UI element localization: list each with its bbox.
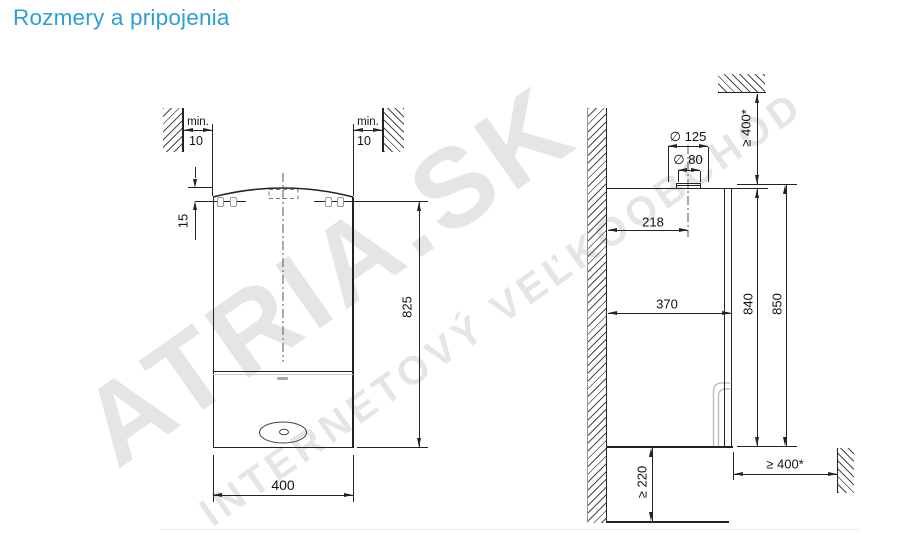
extension-line-boiler-top bbox=[732, 188, 768, 189]
arrow-right-icon bbox=[203, 128, 212, 132]
arrow-left-icon bbox=[213, 493, 222, 497]
mounting-bracket bbox=[325, 197, 332, 207]
extension-line bbox=[353, 124, 354, 196]
arrow-left-icon bbox=[354, 128, 363, 132]
wall-hatch-rear bbox=[588, 108, 606, 523]
arrow-down-icon bbox=[755, 437, 759, 446]
arrow-left-icon bbox=[608, 311, 617, 315]
extension-line-collar-top bbox=[737, 184, 797, 185]
arrow-up-icon bbox=[755, 94, 759, 103]
arrow-left-icon bbox=[678, 168, 687, 172]
dim-220-line bbox=[652, 448, 653, 521]
dim-top-clearance-value: ≥ 400* bbox=[739, 109, 754, 147]
brand-logo bbox=[277, 377, 288, 380]
extension-line bbox=[700, 171, 701, 182]
extension-line bbox=[737, 446, 797, 447]
arrow-down-icon bbox=[193, 179, 197, 188]
dim-min-left-label: min. bbox=[187, 116, 209, 128]
mounting-bracket bbox=[217, 197, 224, 207]
dim-370-value: 370 bbox=[656, 297, 678, 312]
page-edge-line bbox=[160, 529, 860, 530]
wall-line-right bbox=[382, 108, 384, 152]
floor-line bbox=[606, 521, 729, 523]
dim-min-right-value: 10 bbox=[357, 134, 371, 148]
dim-370-line bbox=[608, 313, 731, 314]
arrow-right-icon bbox=[722, 311, 731, 315]
arrow-up-icon bbox=[417, 202, 421, 211]
boiler-top-side bbox=[607, 188, 732, 190]
arrow-up-icon bbox=[755, 189, 759, 198]
boiler-bottom bbox=[213, 447, 354, 449]
dim-400-line bbox=[213, 495, 353, 496]
arrow-down-icon bbox=[755, 175, 759, 184]
dim-825-line bbox=[419, 202, 420, 447]
panel-split-line bbox=[213, 371, 353, 373]
dim-840-line bbox=[757, 189, 758, 446]
dim-218-line bbox=[608, 230, 688, 231]
wall-hatch-right bbox=[384, 108, 404, 152]
flue-collar-mid bbox=[676, 185, 701, 186]
opposite-wall-hatch bbox=[838, 448, 854, 493]
dim-min-right-label: min. bbox=[357, 116, 379, 128]
dim-850-line bbox=[786, 185, 787, 446]
extension-line bbox=[708, 147, 709, 182]
dim-15-tail-bottom bbox=[195, 210, 196, 240]
extension-line bbox=[212, 124, 213, 196]
arrow-right-icon bbox=[344, 493, 353, 497]
control-knob-center bbox=[280, 429, 289, 435]
arrow-left-icon bbox=[184, 128, 193, 132]
boiler-bottom-side bbox=[607, 446, 733, 448]
dim-840-value: 840 bbox=[741, 293, 756, 315]
dim-d80-value: ∅ 80 bbox=[673, 152, 702, 168]
arrow-left-icon bbox=[608, 228, 617, 232]
drawing-curves bbox=[0, 0, 900, 545]
ceiling-hatch bbox=[718, 74, 765, 92]
arrow-down-icon bbox=[783, 437, 787, 446]
arrow-down-icon bbox=[417, 438, 421, 447]
panel-split-shadow bbox=[213, 374, 353, 375]
wall-face-line bbox=[606, 108, 608, 523]
arrow-down-icon bbox=[649, 512, 653, 521]
dim-220-value: ≥ 220 bbox=[635, 466, 650, 498]
dim-front-clearance-value: ≥ 400* bbox=[766, 457, 804, 472]
boiler-edge-left bbox=[213, 197, 215, 448]
extension-line bbox=[733, 452, 734, 480]
boiler-edge-right bbox=[352, 197, 354, 448]
control-knob bbox=[260, 422, 307, 443]
dim-15-tick bbox=[188, 187, 212, 188]
dim-850-value: 850 bbox=[769, 293, 784, 315]
arrow-up-icon bbox=[649, 448, 653, 457]
extension-line bbox=[678, 171, 679, 182]
boiler-front-outer bbox=[731, 188, 733, 446]
diagram-page: ATRIA.SK INTERNETOVÝ VEĽKOOBCHOD Rozmery… bbox=[0, 0, 900, 545]
flue-collar-side bbox=[700, 183, 701, 188]
arrow-up-icon bbox=[193, 201, 197, 210]
arrow-right-icon bbox=[828, 472, 837, 476]
wall-hatch-left bbox=[163, 108, 183, 152]
dim-825-value: 825 bbox=[400, 296, 415, 318]
siphon-pipe-outer bbox=[714, 383, 731, 446]
ceiling-line bbox=[718, 92, 766, 94]
dim-15-value: 15 bbox=[176, 214, 191, 228]
mounting-bracket bbox=[337, 197, 344, 207]
extension-line bbox=[668, 147, 669, 182]
mounting-bracket bbox=[230, 197, 237, 207]
arrow-right-icon bbox=[679, 228, 688, 232]
dim-front-clearance-line bbox=[734, 474, 837, 475]
dim-d125-value: ∅ 125 bbox=[670, 129, 707, 145]
arrow-right-icon bbox=[373, 128, 382, 132]
dim-top-clearance-line bbox=[757, 94, 758, 184]
dim-400-value: 400 bbox=[271, 477, 294, 493]
flue-collar-side bbox=[676, 183, 677, 188]
arrow-left-icon bbox=[734, 472, 743, 476]
arrow-up-icon bbox=[783, 185, 787, 194]
arrow-right-icon bbox=[691, 168, 700, 172]
flue-collar-top bbox=[676, 183, 701, 185]
dim-15-tail-top bbox=[195, 167, 196, 178]
dim-218-value: 218 bbox=[642, 215, 664, 230]
boiler-front-inner bbox=[724, 188, 725, 446]
dim-min-left-value: 10 bbox=[189, 134, 203, 148]
